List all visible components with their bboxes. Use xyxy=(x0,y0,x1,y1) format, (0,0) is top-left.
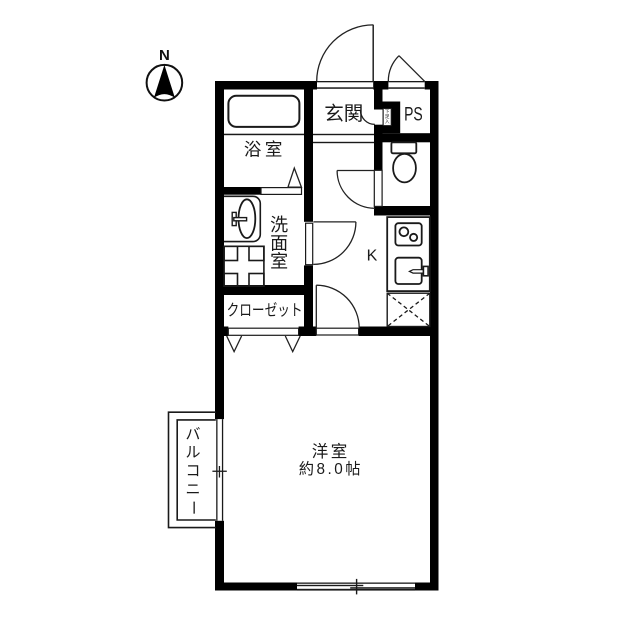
svg-text:室: 室 xyxy=(270,252,288,272)
svg-text:玄関: 玄関 xyxy=(324,103,363,125)
svg-text:ー: ー xyxy=(185,500,202,515)
svg-text:コ: コ xyxy=(185,463,200,480)
svg-text:K: K xyxy=(367,248,378,265)
svg-text:バ: バ xyxy=(185,426,200,443)
svg-text:面: 面 xyxy=(270,234,288,254)
svg-text:N: N xyxy=(159,47,170,64)
svg-text:クローゼット: クローゼット xyxy=(227,301,303,319)
svg-text:ニ: ニ xyxy=(185,481,200,498)
svg-text:ル: ル xyxy=(185,444,200,461)
svg-text:PS: PS xyxy=(404,104,423,126)
svg-text:約8.0帖: 約8.0帖 xyxy=(299,461,363,478)
svg-text:浴室: 浴室 xyxy=(244,140,286,160)
svg-text:洋室: 洋室 xyxy=(312,442,350,461)
svg-text:洗: 洗 xyxy=(270,215,288,235)
svg-text:入: 入 xyxy=(385,119,390,124)
